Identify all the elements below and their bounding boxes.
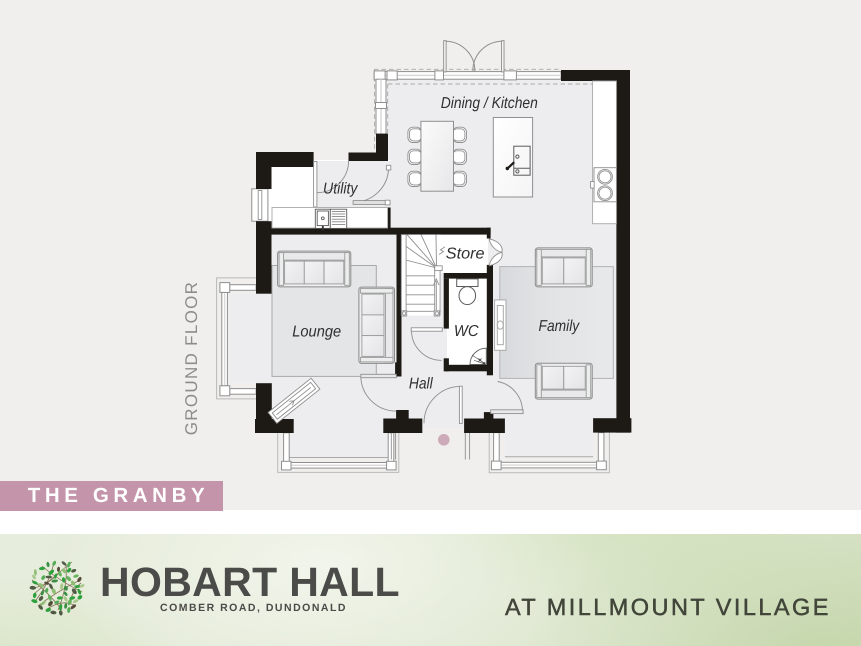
svg-text:WC: WC [454, 323, 479, 340]
svg-text:Lounge: Lounge [292, 324, 341, 341]
svg-text:Dining / Kitchen: Dining / Kitchen [441, 95, 538, 112]
svg-text:Hall: Hall [409, 375, 433, 392]
svg-text:Store: Store [446, 245, 485, 262]
svg-text:Family: Family [539, 318, 581, 335]
svg-text:Utility: Utility [323, 181, 358, 198]
